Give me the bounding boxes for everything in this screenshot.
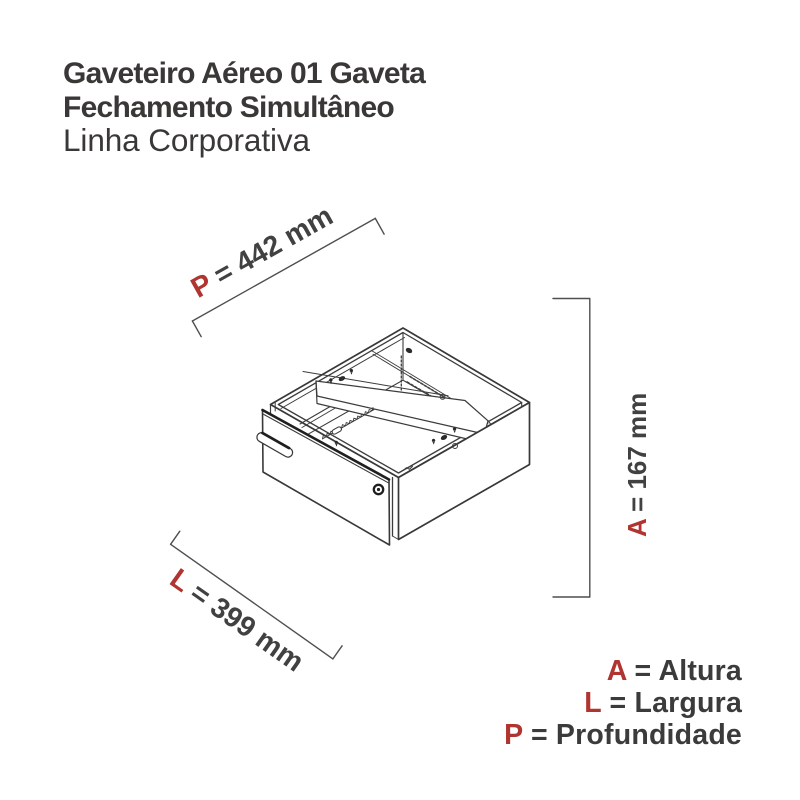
svg-text:L = 399 mm: L = 399 mm: [164, 563, 310, 679]
svg-text:A = 167 mm: A = 167 mm: [622, 393, 652, 537]
